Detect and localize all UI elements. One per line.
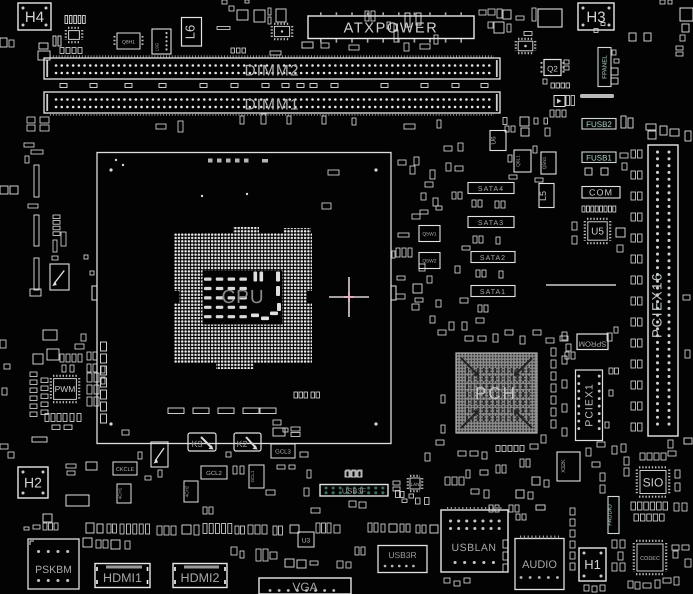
svg-text:USB3R: USB3R — [388, 550, 416, 560]
svg-text:Q8H1: Q8H1 — [122, 40, 135, 46]
svg-text:U5: U5 — [591, 227, 604, 238]
svg-text:Q5N1: Q5N1 — [542, 156, 548, 169]
svg-text:SATA4: SATA4 — [478, 186, 504, 193]
svg-text:USBLAN: USBLAN — [451, 542, 496, 554]
svg-text:SATA1: SATA1 — [480, 289, 506, 296]
svg-text:GCL3: GCL3 — [275, 449, 291, 456]
svg-text:GCL2: GCL2 — [206, 470, 222, 477]
svg-text:AUDIO: AUDIO — [522, 559, 557, 571]
svg-text:CODEC: CODEC — [640, 556, 660, 562]
svg-text:PWM: PWM — [55, 384, 76, 394]
svg-text:K3: K3 — [191, 439, 202, 449]
svg-text:COM: COM — [589, 188, 613, 198]
svg-text:FUSB1: FUSB1 — [586, 154, 612, 163]
svg-text:GCL1: GCL1 — [250, 470, 255, 482]
svg-text:X32K: X32K — [561, 459, 567, 473]
svg-text:CPU: CPU — [221, 287, 264, 308]
svg-text:HDMI2: HDMI2 — [181, 571, 220, 585]
svg-text:H3: H3 — [586, 9, 605, 26]
svg-text:SPROM: SPROM — [579, 340, 607, 349]
svg-text:DIMM2: DIMM2 — [245, 63, 300, 80]
svg-text:USB3F: USB3F — [342, 487, 367, 496]
svg-text:DIMM1: DIMM1 — [245, 97, 300, 114]
svg-text:PCIEX16: PCIEX16 — [650, 272, 665, 338]
svg-text:4CH2: 4CH2 — [185, 485, 190, 497]
svg-text:K2: K2 — [236, 439, 247, 449]
svg-text:ATXPOWER: ATXPOWER — [344, 21, 439, 37]
svg-text:SATA2: SATA2 — [480, 255, 506, 262]
svg-text:H1: H1 — [584, 557, 601, 572]
svg-text:FUSB2: FUSB2 — [586, 120, 612, 129]
svg-text:L5: L5 — [538, 191, 548, 201]
svg-text:SIO: SIO — [643, 475, 664, 489]
svg-text:LAN: LAN — [411, 482, 420, 487]
svg-text:VGA: VGA — [292, 580, 317, 594]
svg-text:L9G: L9G — [155, 42, 160, 51]
svg-text:CKCLE: CKCLE — [116, 467, 135, 473]
svg-text:H2: H2 — [24, 475, 42, 491]
svg-text:HDMI1: HDMI1 — [103, 571, 142, 585]
svg-text:U3: U3 — [302, 538, 311, 545]
svg-text:SATA3: SATA3 — [478, 220, 504, 227]
svg-text:PCH: PCH — [475, 384, 517, 403]
svg-text:U6: U6 — [491, 136, 498, 145]
svg-text:PSKBM: PSKBM — [35, 564, 72, 576]
svg-text:Q5W1: Q5W1 — [422, 232, 436, 238]
svg-text:Q6L1: Q6L1 — [516, 155, 522, 167]
svg-text:H4: H4 — [25, 9, 44, 26]
svg-text:L6: L6 — [183, 25, 198, 39]
svg-text:FAUDIO: FAUDIO — [607, 504, 614, 526]
svg-text:4CH1: 4CH1 — [118, 487, 123, 499]
svg-text:FPANEL: FPANEL — [602, 55, 609, 79]
svg-text:Q2: Q2 — [547, 65, 558, 74]
svg-text:PCIEX1: PCIEX1 — [584, 383, 596, 426]
